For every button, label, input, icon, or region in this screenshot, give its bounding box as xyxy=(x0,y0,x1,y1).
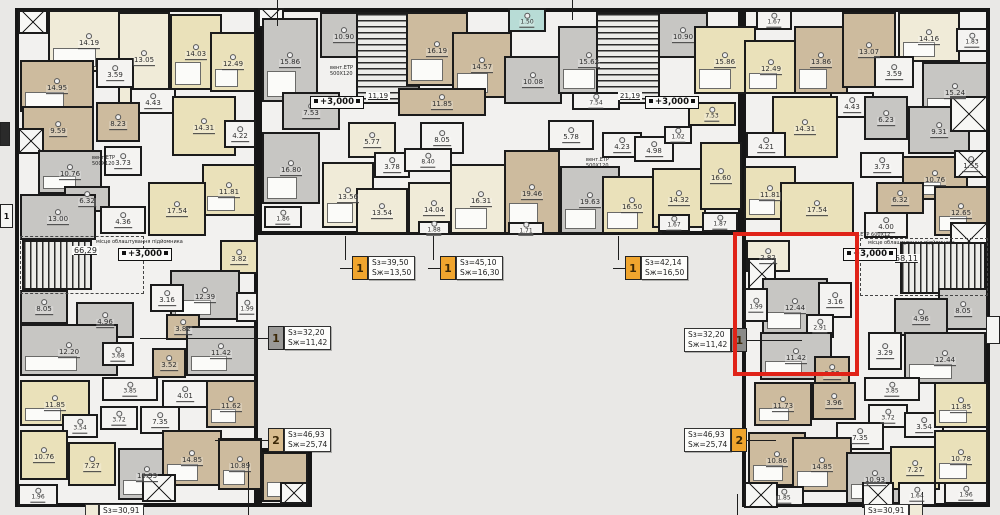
room-area-label: 1.87 xyxy=(712,222,727,230)
room: 11.85 xyxy=(398,88,486,116)
room: 10.76 xyxy=(20,430,68,480)
room-label: 8.23 xyxy=(109,114,127,130)
leader-line xyxy=(613,268,625,269)
room-area-label: 6.32 xyxy=(78,198,96,207)
room-label: 13.56 xyxy=(337,187,359,203)
room-label: 14.16 xyxy=(918,29,940,45)
room: 3.72 xyxy=(100,406,138,430)
apartment-badge: 1Sз=42,14Sж=16,50 xyxy=(625,256,688,280)
room-label: 15.62 xyxy=(578,52,600,68)
room-label: 1.83 xyxy=(964,33,979,48)
room-label: 11.81 xyxy=(218,182,240,198)
room-label: 4.21 xyxy=(757,137,775,153)
plan-annotation: 58,11 xyxy=(893,254,920,263)
room-label: 12.39 xyxy=(194,287,216,303)
total-area-label: Sз=30,91 xyxy=(864,504,909,515)
room-area-label: 3.73 xyxy=(114,160,132,169)
room-label: 14.19 xyxy=(78,33,100,49)
edge-badge-stub xyxy=(0,122,10,146)
room-area-label: 6.32 xyxy=(891,197,909,206)
room: 3.16 xyxy=(150,284,184,312)
room-area-label: 4.22 xyxy=(231,133,249,142)
room-area-label: 1.99 xyxy=(239,307,254,315)
room-label: 11.81 xyxy=(759,185,781,201)
room-area-label: 12.49 xyxy=(222,61,244,70)
room-label: 16.19 xyxy=(426,41,448,57)
room-label: 7.53 xyxy=(704,107,719,122)
apartment-badge: 2Sз=46,93Sж=25,74 xyxy=(268,428,331,452)
room: 1.64 xyxy=(898,482,936,506)
room-label: 1.86 xyxy=(275,210,290,225)
room: 10.78 xyxy=(934,430,988,484)
room-area-label: 3.78 xyxy=(383,164,401,173)
room-label: 9.59 xyxy=(49,121,67,137)
room-area-label: 16.19 xyxy=(426,48,448,57)
room-area-label: 14.19 xyxy=(78,40,100,49)
room-area-label: 7.53 xyxy=(302,110,320,119)
room-area-label: 3.72 xyxy=(111,418,126,426)
room-area-label: 8.40 xyxy=(420,160,435,168)
leader-line xyxy=(340,268,352,269)
room-label: 3.73 xyxy=(873,157,891,173)
furniture xyxy=(455,208,487,229)
apartment-areas: Sз=45,10Sж=16,30 xyxy=(456,256,503,280)
plan-annotation: вент.ЕТР 500Х120 xyxy=(92,156,115,168)
room: 1.67 xyxy=(658,214,690,232)
room: 7.27 xyxy=(68,442,116,486)
room-area-label: 15.86 xyxy=(279,59,301,68)
room-label: 10.89 xyxy=(229,456,251,472)
room-label: 16.31 xyxy=(470,191,492,207)
room-area-label: 10.90 xyxy=(672,34,694,43)
room-area-label: 7.27 xyxy=(906,467,924,476)
leader-line xyxy=(277,0,278,26)
plan-annotation: вент.ЕТР 500Х120 xyxy=(586,158,609,170)
room-area-label: 16.80 xyxy=(280,167,302,176)
room-label: 14.31 xyxy=(193,118,215,134)
room-label: 10.76 xyxy=(33,447,55,463)
room-area-label: 8.05 xyxy=(954,308,972,317)
room: 12.49 xyxy=(744,40,798,94)
room-label: 3.54 xyxy=(72,419,87,434)
room-label: 14.95 xyxy=(46,78,68,94)
room-area-label: 1.96 xyxy=(958,493,973,501)
room-label: 15.86 xyxy=(714,52,736,68)
room-label: 4.01 xyxy=(176,386,194,402)
room-label: 4.22 xyxy=(231,126,249,142)
room: 4.21 xyxy=(746,132,786,158)
room-label: 1.96 xyxy=(30,488,45,503)
room-label: 1.71 xyxy=(518,221,533,236)
leader-line xyxy=(140,338,268,339)
room-area-label: 3.85 xyxy=(884,389,899,397)
room-area-label: 14.85 xyxy=(811,464,833,473)
room-area-label: 19.63 xyxy=(579,199,601,208)
room-label: 7.27 xyxy=(906,460,924,476)
apartment-badge: 1Sз=45,10Sж=16,30 xyxy=(440,256,503,280)
room-label: 6.32 xyxy=(891,190,909,206)
room-label: 6.23 xyxy=(877,110,895,126)
room-area-label: 12.65 xyxy=(950,210,972,219)
furniture xyxy=(223,470,245,485)
room-area-label: 4.96 xyxy=(96,319,114,328)
furniture xyxy=(749,73,777,89)
room: 1.83 xyxy=(956,28,988,52)
furniture xyxy=(175,62,201,85)
room-label: 3.78 xyxy=(383,157,401,173)
furniture xyxy=(565,209,596,229)
room-area-label: 3.96 xyxy=(825,400,843,409)
room-label: 1.96 xyxy=(958,486,973,501)
room-area-label: 11.85 xyxy=(44,402,66,411)
room-area-label: 10.86 xyxy=(766,458,788,467)
room: 16.60 xyxy=(700,142,742,210)
room-area-label: 4.23 xyxy=(613,144,631,153)
room-area-label: 13.00 xyxy=(47,216,69,225)
room xyxy=(280,482,308,504)
room-area-label: 1.55 xyxy=(962,163,980,172)
highlight-rectangle xyxy=(733,232,859,376)
room-label: 10.90 xyxy=(672,27,694,43)
room-area-label: 1.85 xyxy=(776,496,791,504)
room: 5.78 xyxy=(548,120,594,150)
room: 8.23 xyxy=(96,102,140,142)
apartment-badge: 1Sз=32,20Sж=11,42 xyxy=(268,326,331,350)
room-label: 3.85 xyxy=(884,382,899,397)
room-area-label: 14.85 xyxy=(181,457,203,466)
room-area-label: 10.93 xyxy=(864,477,886,486)
room-label: 10.93 xyxy=(136,466,158,482)
room-label: 14.31 xyxy=(794,119,816,135)
room: 11.42 xyxy=(186,326,256,376)
room-area-label: 14.04 xyxy=(423,207,445,216)
edge-badge-stub: 1 xyxy=(0,204,13,228)
room-label: 13.07 xyxy=(858,42,880,58)
room-label: 13.05 xyxy=(133,50,155,66)
total-area-label: Sз=30,91 xyxy=(99,504,144,515)
room-area-label: 1.67 xyxy=(766,20,781,28)
room-label: 1.02 xyxy=(670,128,685,143)
total-area-chip: Sз=30,91 xyxy=(864,504,923,515)
furniture xyxy=(607,212,638,229)
plan-annotation: 21,19 xyxy=(618,92,642,100)
plan-annotation: місце облаштування підйомника xyxy=(96,240,183,246)
room-area-label: 14.03 xyxy=(185,51,207,60)
room-label: 3.54 xyxy=(915,417,933,433)
room: 1.87 xyxy=(702,212,738,232)
room-label: 3.59 xyxy=(885,64,903,80)
room-label: 14.32 xyxy=(668,190,690,206)
room-area-label: 11.42 xyxy=(210,350,232,359)
room-area-label: 16.60 xyxy=(710,175,732,184)
room-area-label: 13.07 xyxy=(858,49,880,58)
room-label: 15.24 xyxy=(944,83,966,99)
plan-annotation: 66,29 xyxy=(72,246,99,255)
room-label: 16.60 xyxy=(710,168,732,184)
room: 7.54 xyxy=(572,92,620,110)
room-area-label: 9.31 xyxy=(930,129,948,138)
room: 4.96 xyxy=(894,298,948,336)
room: 3.59 xyxy=(874,56,914,88)
room-area-label: 14.32 xyxy=(668,197,690,206)
room-area-label: 8.05 xyxy=(433,137,451,146)
room xyxy=(596,12,660,104)
room-label: 16.50 xyxy=(621,197,643,213)
room: 17.54 xyxy=(780,182,854,234)
room: 1.50 xyxy=(508,8,546,32)
room-area-label: 17.54 xyxy=(166,208,188,217)
room-area-label: 9.59 xyxy=(49,128,67,137)
room-label: 10.86 xyxy=(766,451,788,467)
room-label: 3.82 xyxy=(174,319,192,335)
room-label: 3.16 xyxy=(158,290,176,306)
room-label: 12.44 xyxy=(934,350,956,366)
room-label: 1.64 xyxy=(909,487,924,502)
plan-annotation: 11,19 xyxy=(366,92,390,100)
room-label: 3.82 xyxy=(230,249,248,265)
room-area-label: 17.54 xyxy=(806,207,828,216)
room-area-label: 10.76 xyxy=(33,454,55,463)
room-area-label: 4.43 xyxy=(843,104,861,113)
room-area-label: 1.67 xyxy=(666,223,681,231)
room: 11.62 xyxy=(206,380,256,428)
room xyxy=(744,482,778,508)
room: 1.02 xyxy=(664,126,692,144)
room-area-label: 7.53 xyxy=(704,114,719,122)
room: 6.23 xyxy=(864,96,908,140)
room-label: 17.54 xyxy=(166,201,188,217)
room-label: 4.96 xyxy=(96,312,114,328)
room: 1.67 xyxy=(756,10,792,30)
room-area-label: 15.62 xyxy=(578,59,600,68)
room xyxy=(18,10,48,34)
room-area-label: 10.76 xyxy=(924,177,946,186)
apartment-number: 1 xyxy=(625,256,641,280)
room-area-label: 3.73 xyxy=(873,164,891,173)
apartment-areas: Sз=32,20Sж=11,42 xyxy=(684,328,731,352)
room: 1.96 xyxy=(18,484,58,506)
room: 3.68 xyxy=(102,342,134,366)
area-swatch xyxy=(909,504,923,515)
room-area-label: 13.54 xyxy=(371,210,393,219)
room-label: 19.46 xyxy=(521,184,543,200)
room: 1.71 xyxy=(508,222,544,235)
room: 3.52 xyxy=(152,348,186,378)
room-area-label: 12.44 xyxy=(934,357,956,366)
room: 3.29 xyxy=(868,332,902,370)
room-area-label: 3.54 xyxy=(72,426,87,434)
level-mark: +3,000 xyxy=(645,96,699,109)
total-area-chip: Sз=30,91 xyxy=(85,504,144,515)
room-area-label: 5.78 xyxy=(562,134,580,143)
leader-line xyxy=(345,236,346,260)
room-area-label: 11.85 xyxy=(950,404,972,413)
furniture xyxy=(327,203,353,223)
leader-line xyxy=(433,236,434,260)
room-label: 15.86 xyxy=(279,52,301,68)
edge-badge-stub xyxy=(986,316,1000,344)
room-area-label: 3.59 xyxy=(885,71,903,80)
room-label: 11.85 xyxy=(431,94,453,110)
room-label: 14.04 xyxy=(423,200,445,216)
room-label: 7.27 xyxy=(83,456,101,472)
room-label: 13.00 xyxy=(47,209,69,225)
room-area-label: 4.98 xyxy=(645,148,663,157)
room: 4.36 xyxy=(100,206,146,234)
room: 1.88 xyxy=(418,221,450,235)
room-label: 3.85 xyxy=(122,382,137,397)
furniture xyxy=(797,471,828,487)
room-area-label: 7.54 xyxy=(588,101,603,109)
room-area-label: 7.27 xyxy=(83,463,101,472)
room-label: 3.72 xyxy=(880,409,895,424)
room-label: 12.49 xyxy=(222,54,244,70)
apartment-areas: Sз=46,93Sж=25,74 xyxy=(684,428,731,452)
level-mark: +3,000 xyxy=(118,248,172,261)
room-label: 11.73 xyxy=(772,396,794,412)
room-label: 6.32 xyxy=(78,191,96,207)
room-area-label: 11.73 xyxy=(772,403,794,412)
furniture xyxy=(267,177,297,199)
room-area-label: 1.96 xyxy=(30,495,45,503)
room-label: 10.78 xyxy=(950,449,972,465)
apartment-areas: Sз=32,20Sж=11,42 xyxy=(284,326,331,350)
room-area-label: 10.78 xyxy=(950,456,972,465)
furniture xyxy=(799,69,827,89)
room-label: 3.72 xyxy=(111,411,126,426)
leader-line xyxy=(572,0,573,20)
room-label: 4.43 xyxy=(144,93,162,109)
room-label: 14.85 xyxy=(811,457,833,473)
room-area-label: 3.82 xyxy=(174,326,192,335)
furniture xyxy=(753,465,783,481)
room-label: 1.87 xyxy=(712,215,727,230)
leader-line xyxy=(737,494,738,515)
room: 11.73 xyxy=(754,382,812,426)
room: 3.96 xyxy=(812,382,856,420)
room-area-label: 11.62 xyxy=(220,403,242,412)
room-label: 7.35 xyxy=(151,412,169,428)
room-label: 1.55 xyxy=(962,156,980,172)
room-label: 12.49 xyxy=(760,59,782,75)
room-label: 13.86 xyxy=(810,52,832,68)
room-label: 8.05 xyxy=(35,299,53,315)
room: 1.55 xyxy=(954,150,988,178)
room-area-label: 1.86 xyxy=(275,217,290,225)
room: 14.95 xyxy=(20,60,94,112)
apartment-number: 2 xyxy=(268,428,284,452)
room: 11.81 xyxy=(202,164,256,216)
room-label: 1.67 xyxy=(666,216,681,231)
room-area-label: 14.31 xyxy=(193,125,215,134)
room-label: 3.73 xyxy=(114,153,132,169)
room-label: 8.05 xyxy=(954,301,972,317)
room-area-label: 12.20 xyxy=(58,349,80,358)
room-area-label: 16.50 xyxy=(621,204,643,213)
room-area-label: 3.85 xyxy=(122,389,137,397)
room-label: 12.20 xyxy=(58,342,80,358)
room-label: 7.35 xyxy=(851,428,869,444)
room-area-label: 11.85 xyxy=(431,101,453,110)
room-label: 10.90 xyxy=(333,27,355,43)
room-label: 10.93 xyxy=(864,470,886,486)
room-area-label: 4.96 xyxy=(912,316,930,325)
room-area-label: 11.81 xyxy=(759,192,781,201)
plan-annotation: вент.ЕТР 500Х120 xyxy=(330,66,353,78)
room-area-label: 8.05 xyxy=(35,306,53,315)
room-area-label: 4.21 xyxy=(757,144,775,153)
furniture xyxy=(207,196,235,211)
room: 11.85 xyxy=(934,382,988,428)
room: 12.49 xyxy=(210,32,256,92)
room-area-label: 12.49 xyxy=(760,66,782,75)
room-area-label: 3.54 xyxy=(915,424,933,433)
furniture xyxy=(215,69,238,87)
floor-plan-canvas: 14.1913.0514.0312.493.5914.954.4314.314.… xyxy=(0,0,1000,515)
room-label: 14.85 xyxy=(181,450,203,466)
room-label: 4.43 xyxy=(843,97,861,113)
room: 10.08 xyxy=(504,56,562,104)
room: 10.89 xyxy=(218,438,262,490)
room: 3.59 xyxy=(96,58,134,88)
room: 1.99 xyxy=(236,292,258,322)
room-area-label: 13.56 xyxy=(337,194,359,203)
room-label: 3.29 xyxy=(876,343,894,359)
apartment-number: 1 xyxy=(440,256,456,280)
room: 1.86 xyxy=(264,206,302,228)
room-label: 3.68 xyxy=(110,347,125,362)
room-area-label: 12.39 xyxy=(194,294,216,303)
room-area-label: 3.82 xyxy=(230,256,248,265)
furniture xyxy=(563,69,595,89)
room-label: 4.98 xyxy=(645,141,663,157)
room-area-label: 15.24 xyxy=(944,90,966,99)
room-area-label: 10.76 xyxy=(59,171,81,180)
apartment-number: 1 xyxy=(352,256,368,280)
apartment-badge: Sз=46,93Sж=25,742 xyxy=(684,428,747,452)
room-area-label: 1.64 xyxy=(909,494,924,502)
room-label: 4.36 xyxy=(114,212,132,228)
room-label: 10.76 xyxy=(924,170,946,186)
room-label: 4.00 xyxy=(877,217,895,233)
room-label: 8.05 xyxy=(433,130,451,146)
room-label: 17.54 xyxy=(806,200,828,216)
room: 1.96 xyxy=(944,482,988,504)
room-label: 1.85 xyxy=(776,489,791,504)
room-label: 3.59 xyxy=(106,65,124,81)
room xyxy=(950,96,988,132)
room-area-label: 1.88 xyxy=(426,228,441,236)
room-label: 10.76 xyxy=(59,164,81,180)
room-area-label: 6.23 xyxy=(877,117,895,126)
room-label: 8.40 xyxy=(420,153,435,168)
room-area-label: 8.23 xyxy=(109,121,127,130)
room-area-label: 10.08 xyxy=(522,79,544,88)
room-area-label: 4.01 xyxy=(176,393,194,402)
room-area-label: 1.02 xyxy=(670,135,685,143)
area-swatch xyxy=(85,504,99,515)
room-label: 13.54 xyxy=(371,203,393,219)
room-area-label: 1.71 xyxy=(518,228,533,236)
room-label: 4.96 xyxy=(912,309,930,325)
room: 3.85 xyxy=(102,377,158,401)
leader-line xyxy=(618,236,619,260)
furniture xyxy=(749,199,775,215)
room: 14.16 xyxy=(898,12,960,62)
room: 17.54 xyxy=(148,182,206,236)
room-area-label: 10.89 xyxy=(229,463,251,472)
room-area-label: 14.16 xyxy=(918,36,940,45)
